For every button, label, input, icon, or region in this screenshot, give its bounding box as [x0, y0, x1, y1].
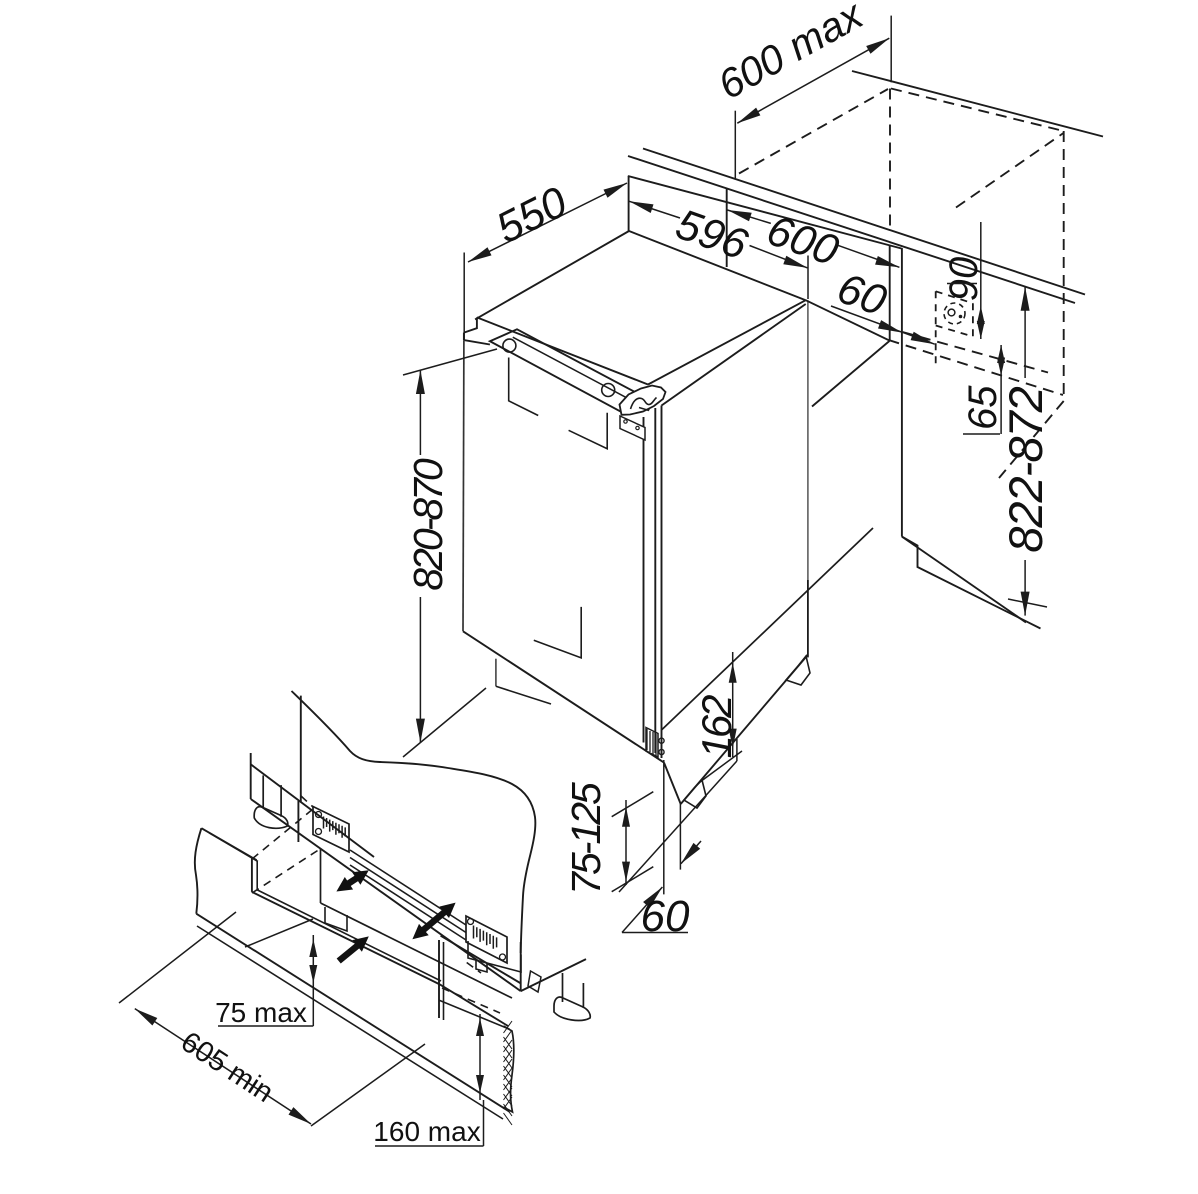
- svg-text:822-872: 822-872: [999, 386, 1052, 552]
- svg-text:160 max: 160 max: [373, 1116, 480, 1147]
- svg-text:162: 162: [693, 695, 740, 759]
- svg-text:60: 60: [641, 892, 690, 941]
- svg-text:75 max: 75 max: [215, 997, 307, 1028]
- svg-text:90: 90: [942, 257, 986, 302]
- svg-text:820-870: 820-870: [405, 458, 451, 591]
- svg-text:75-125: 75-125: [563, 782, 609, 895]
